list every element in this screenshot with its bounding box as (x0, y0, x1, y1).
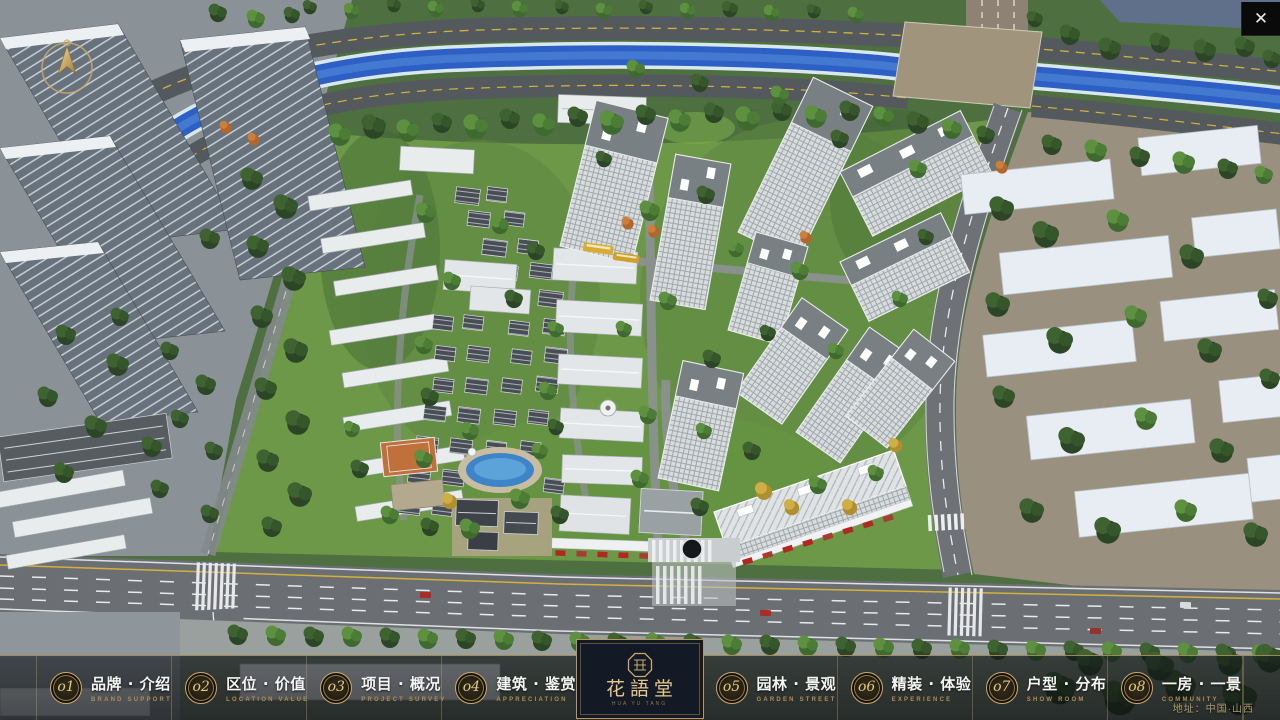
menu-number-badge-1: o1 (50, 672, 82, 704)
menu-item-subtitle: PROJECT SURVEY (361, 697, 441, 703)
river-bridge (893, 22, 1042, 108)
presentation-window: ✕ o1 品牌 · 介绍 BRAND SUPPORT o2 区位 · 价值 LO… (0, 0, 1280, 720)
brand-logo-slot: 花語堂 HUA YU TANG (578, 656, 703, 720)
bar-left-spacer (0, 656, 37, 720)
menu-item-interior-experience[interactable]: o6 精装 · 体验 EXPERIENCE (838, 656, 973, 720)
menu-item-subtitle: GARDEN STREET (757, 697, 837, 703)
menu-item-floorplan-distribution[interactable]: o7 户型 · 分布 SHOW ROOM (973, 656, 1108, 720)
bar-right-spacer (1243, 656, 1280, 720)
menu-item-subtitle: LOCATION VALUE (226, 697, 306, 703)
menu-item-garden-landscape[interactable]: o5 园林 · 景观 GARDEN STREET (703, 656, 838, 720)
menu-item-title: 品牌 · 介绍 (91, 673, 171, 694)
menu-number-badge-2: o2 (185, 672, 217, 704)
menu-number-badge-7: o7 (986, 672, 1018, 704)
menu-item-title: 一房 · 一景 (1162, 673, 1242, 694)
menu-item-title: 精装 · 体验 (892, 673, 972, 694)
masterplan-3d-render (0, 0, 1280, 720)
menu-item-subtitle: SHOW ROOM (1027, 697, 1107, 703)
brand-name: 花語堂 (601, 680, 678, 699)
menu-item-project-survey[interactable]: o3 项目 · 概况 PROJECT SURVEY (307, 656, 442, 720)
close-button[interactable]: ✕ (1241, 2, 1280, 36)
menu-item-title: 园林 · 景观 (757, 673, 837, 694)
menu-number-badge-4: o4 (455, 672, 487, 704)
menu-number-badge-6: o6 (851, 672, 883, 704)
menu-number-badge-5: o5 (716, 672, 748, 704)
menu-number-badge-3: o3 (320, 672, 352, 704)
menu-item-subtitle: EXPERIENCE (892, 697, 972, 703)
menu-item-title: 建筑 · 鉴赏 (496, 673, 576, 694)
menu-item-brand-intro[interactable]: o1 品牌 · 介绍 BRAND SUPPORT (37, 656, 172, 720)
bottom-menu-bar: o1 品牌 · 介绍 BRAND SUPPORT o2 区位 · 价值 LOCA… (0, 655, 1280, 720)
menu-item-location-value[interactable]: o2 区位 · 价值 LOCATION VALUE (172, 656, 307, 720)
entrance-plaza-circle (682, 539, 702, 559)
menu-number-badge-8: o8 (1121, 672, 1153, 704)
brand-seal-icon (627, 652, 653, 678)
menu-item-title: 区位 · 价值 (226, 673, 306, 694)
menu-item-title: 项目 · 概况 (361, 673, 441, 694)
close-icon: ✕ (1254, 9, 1268, 29)
menu-item-room-view[interactable]: o8 一房 · 一景 COMMUNITY (1108, 656, 1243, 720)
brand-tagline: HUA YU TANG (612, 701, 667, 707)
menu-item-subtitle: APPRECIATION (496, 697, 576, 703)
menu-item-title: 户型 · 分布 (1027, 673, 1107, 694)
menu-item-subtitle: COMMUNITY (1162, 697, 1242, 703)
brand-logo-button[interactable]: 花語堂 HUA YU TANG (576, 639, 704, 719)
menu-item-architecture[interactable]: o4 建筑 · 鉴赏 APPRECIATION (442, 656, 577, 720)
menu-item-subtitle: BRAND SUPPORT (91, 697, 171, 703)
